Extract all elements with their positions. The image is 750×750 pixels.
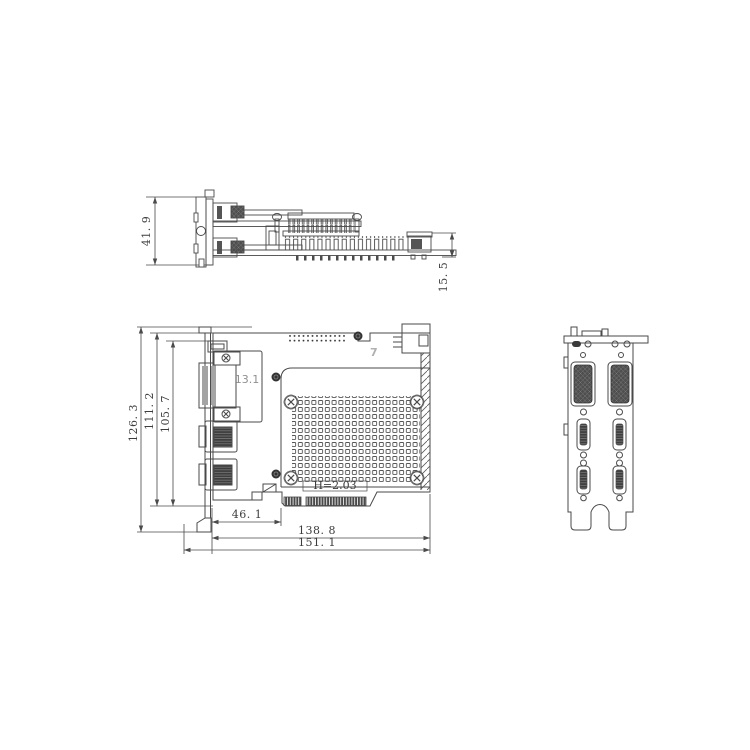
arrow-right-icon xyxy=(424,536,431,540)
end-dvi-connector-right xyxy=(608,362,632,406)
bracket-side-tab xyxy=(564,357,568,368)
technical-drawing-page: 41. 9 xyxy=(0,0,750,750)
bottom-notch-component xyxy=(252,484,276,500)
dvi-connector: 13.1 xyxy=(199,351,262,422)
dimension-component-height: 15. 5 xyxy=(432,233,456,292)
dimension-label-126-3: 126. 3 xyxy=(127,404,140,442)
edge-height-marking: H=2.03 xyxy=(313,479,356,492)
dimension-board-height: 111. 2 xyxy=(143,333,213,506)
dvi-marking-13-1: 13.1 xyxy=(235,373,260,386)
edge-connector-label: H=2.03 xyxy=(303,479,367,492)
front-view: 13.1 7 xyxy=(127,324,430,554)
phillips-screw-icon xyxy=(284,395,298,409)
heatsink-plate xyxy=(281,368,430,487)
dimension-label-151-1: 151. 1 xyxy=(298,536,336,549)
arrow-up-icon xyxy=(450,233,454,240)
arrow-left-icon xyxy=(212,536,219,540)
arrow-right-icon xyxy=(275,520,282,524)
end-card-edge-profile xyxy=(564,327,648,343)
front-power-connector xyxy=(393,324,430,353)
arrow-right-icon xyxy=(424,548,431,552)
arrow-left-icon xyxy=(212,520,219,524)
dimension-label-46-1: 46. 1 xyxy=(232,508,263,521)
arrow-down-icon xyxy=(450,251,454,258)
arrow-up-icon xyxy=(139,327,143,334)
end-bracket-view xyxy=(564,327,648,530)
screw-icon xyxy=(272,373,281,382)
dimension-label-105-7: 105. 7 xyxy=(159,395,172,433)
end-mini-port xyxy=(613,419,626,450)
end-mini-port xyxy=(613,466,626,494)
mini-port-1 xyxy=(199,421,237,452)
side-heatsink-push-pin xyxy=(273,214,282,233)
drawing-svg: 41. 9 xyxy=(0,0,750,750)
arrow-up-icon xyxy=(171,341,175,348)
dimension-edge-key-offset: 46. 1 xyxy=(212,508,281,554)
silkscreen-7-marking: 7 xyxy=(370,346,378,359)
screw-icon xyxy=(272,470,281,479)
phillips-screw-icon xyxy=(410,395,424,409)
pin-header-footprint xyxy=(288,334,346,343)
screw-icon xyxy=(572,341,581,347)
screw-icon xyxy=(354,332,363,341)
dimension-label-111-2: 111. 2 xyxy=(143,392,156,430)
dimension-tab-height: 105. 7 xyxy=(159,341,210,506)
side-heatsink-fins xyxy=(283,236,405,250)
side-profile-view: 41. 9 xyxy=(140,190,456,292)
side-bracket-profile xyxy=(194,190,214,267)
side-support-block xyxy=(266,226,279,250)
side-pin-header xyxy=(283,213,359,236)
arrow-up-icon xyxy=(153,197,157,204)
arrow-down-icon xyxy=(139,526,143,533)
end-dvi-connector-left xyxy=(571,362,595,406)
bracket-side-tab xyxy=(564,424,568,435)
arrow-down-icon xyxy=(155,500,159,507)
end-mini-port xyxy=(577,419,590,450)
dimension-bracket-height: 41. 9 xyxy=(140,197,212,265)
pcie-edge-connector xyxy=(284,497,366,506)
bracket-foot xyxy=(197,518,211,532)
side-pcb-bar xyxy=(213,250,456,256)
side-power-connector xyxy=(407,232,432,259)
heatsink-perforations xyxy=(292,396,420,484)
end-mini-port xyxy=(577,466,590,494)
dimension-label-41-9: 41. 9 xyxy=(140,216,153,247)
arrow-down-icon xyxy=(171,500,175,507)
arrow-up-icon xyxy=(155,333,159,340)
phillips-screw-icon xyxy=(410,471,424,485)
arrow-down-icon xyxy=(153,259,157,266)
mini-port-2 xyxy=(199,459,237,490)
dimension-label-15-5: 15. 5 xyxy=(437,262,450,293)
heatsink-edge-band xyxy=(421,353,430,490)
phillips-screw-icon xyxy=(284,471,298,485)
arrow-left-icon xyxy=(184,548,191,552)
